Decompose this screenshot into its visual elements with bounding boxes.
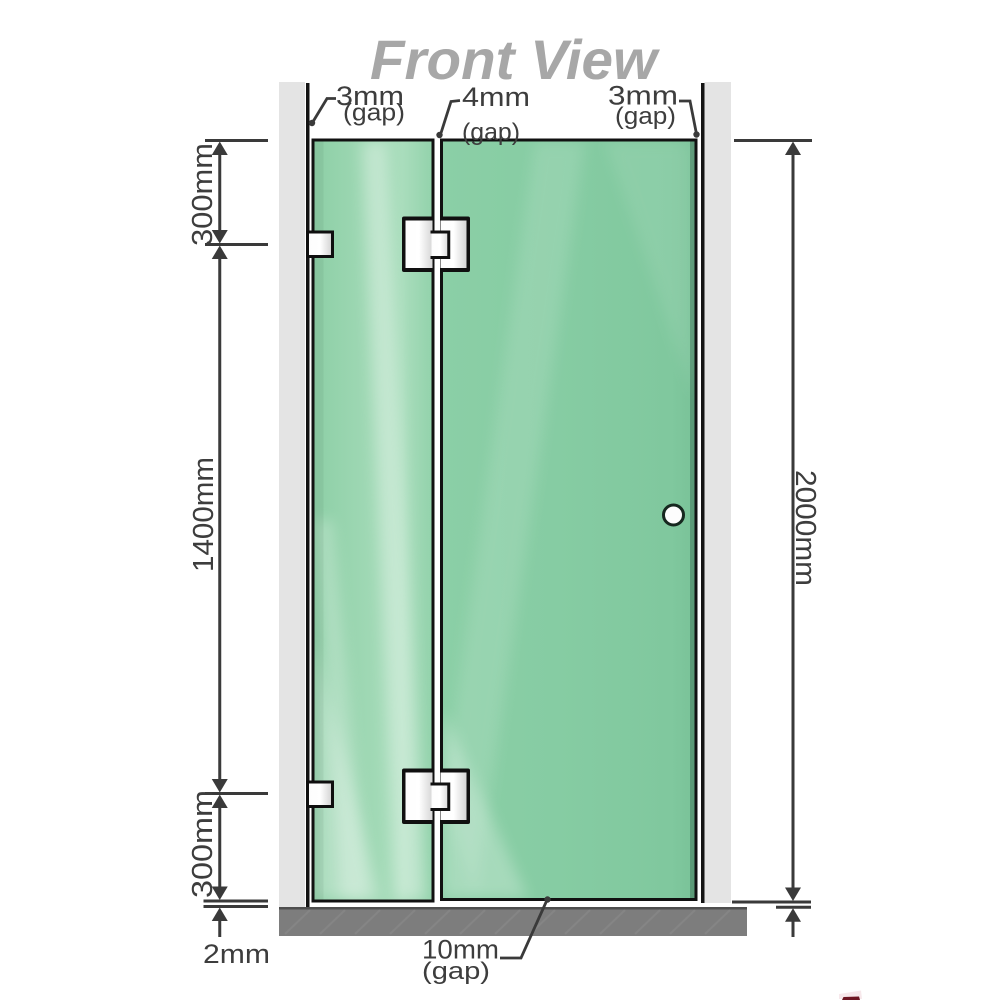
svg-text:(gap): (gap) [615, 103, 676, 130]
svg-text:1400mm: 1400mm [188, 457, 220, 572]
svg-text:2mm: 2mm [203, 939, 270, 969]
svg-text:300mm: 300mm [187, 143, 219, 246]
svg-text:4mm: 4mm [462, 82, 530, 112]
svg-text:(gap): (gap) [343, 100, 405, 127]
svg-text:2000mm: 2000mm [789, 470, 821, 586]
svg-text:(gap): (gap) [422, 958, 490, 985]
svg-text:(gap): (gap) [462, 119, 520, 146]
svg-text:300mm: 300mm [187, 790, 219, 898]
